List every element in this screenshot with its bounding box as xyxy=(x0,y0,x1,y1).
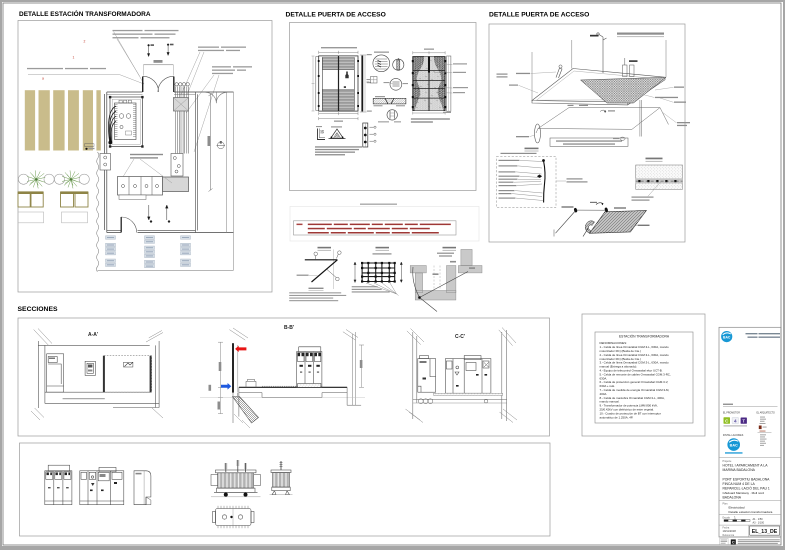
svg-text:Projecte: Projecte xyxy=(723,460,732,463)
svg-text:Detalle estación transformador: Detalle estación transformadora xyxy=(729,510,773,514)
svg-text:PORT ESPORTIU BADALONA: PORT ESPORTIU BADALONA xyxy=(723,477,771,481)
svg-text:C: C xyxy=(732,540,735,544)
svg-text:FINCA NUM 4 DE LA: FINCA NUM 4 DE LA xyxy=(723,482,756,486)
svg-text:INSTAL·LACIONES: INSTAL·LACIONES xyxy=(723,434,744,437)
svg-text:a: a xyxy=(42,77,44,81)
svg-text:19/11/2018: 19/11/2018 xyxy=(723,529,737,533)
svg-text:T: T xyxy=(742,418,745,423)
svg-text:SECCIONES: SECCIONES xyxy=(18,306,59,313)
svg-text:5.- Celda de remonte de cables: 5.- Celda de remonte de cables Ormazabal… xyxy=(600,372,671,376)
svg-text:7.- Celda de medida de energía: 7.- Celda de medida de energía Ormazabal… xyxy=(600,388,670,392)
svg-text:C-C': C-C' xyxy=(455,334,465,340)
svg-text:EL PROMOTOR: EL PROMOTOR xyxy=(723,412,740,414)
svg-text:2: 2 xyxy=(84,40,86,44)
svg-text:BADALONA: BADALONA xyxy=(723,495,742,499)
svg-text:MARINA BADALONA: MARINA BADALONA xyxy=(723,468,756,472)
svg-text:1: 1 xyxy=(73,55,75,59)
svg-text:B-B': B-B' xyxy=(284,325,294,331)
svg-text:EL ARQUITECTO: EL ARQUITECTO xyxy=(757,411,775,414)
svg-text:A3 · 1/100: A3 · 1/100 xyxy=(753,521,765,524)
svg-text:DETALLE ESTACIÓN TRANSFORMADOR: DETALLE ESTACIÓN TRANSFORMADORA xyxy=(19,9,151,18)
svg-text:DETALLE PUERTA DE ACCESO: DETALLE PUERTA DE ACCESO xyxy=(489,12,589,19)
svg-text:DETALLE PUERTA DE ACCESO: DETALLE PUERTA DE ACCESO xyxy=(286,12,386,19)
svg-text:HOTEL I APARCAMENT A LA: HOTEL I APARCAMENT A LA xyxy=(723,464,769,468)
svg-text:A-A': A-A' xyxy=(88,332,98,338)
svg-text:EL_13_DE: EL_13_DE xyxy=(752,529,778,535)
svg-text:BAC: BAC xyxy=(730,444,738,448)
svg-text:Plan:: Plan: xyxy=(723,502,729,505)
svg-text:BAC: BAC xyxy=(723,336,731,340)
svg-text:Referencia: Referencia xyxy=(723,534,735,537)
svg-text:4: 4 xyxy=(734,418,737,423)
svg-text:ESTACIÓN TRANSFORMADORA: ESTACIÓN TRANSFORMADORA xyxy=(619,333,670,338)
svg-text:Escala: Escala xyxy=(723,516,731,519)
svg-text:REPARCEL·LACIÓ DEL PAU 1: REPARCEL·LACIÓ DEL PAU 1 xyxy=(723,486,770,491)
svg-text:automático de 1.250A, 4P.: automático de 1.250A, 4P. xyxy=(600,415,634,419)
svg-text:Fecha: Fecha xyxy=(723,527,730,530)
